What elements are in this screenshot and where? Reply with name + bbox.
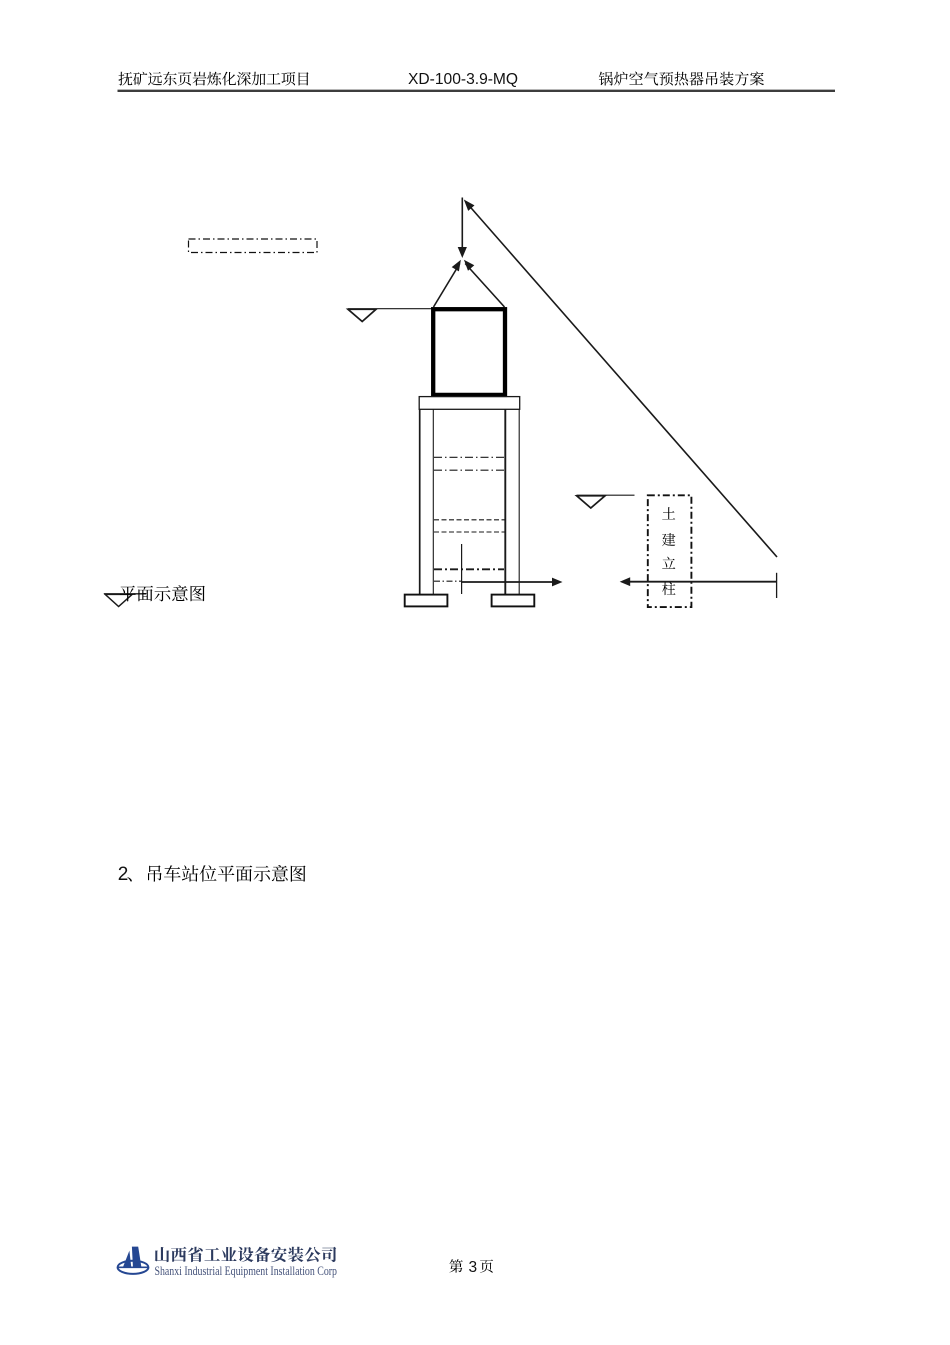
svg-text:2: 2 (118, 864, 129, 885)
svg-text:3: 3 (469, 1259, 478, 1276)
svg-text:Shanxi Industrial Equipment In: Shanxi Industrial Equipment Installation… (155, 1264, 338, 1278)
svg-text:XD-100-3.9-MQ: XD-100-3.9-MQ (408, 71, 518, 88)
